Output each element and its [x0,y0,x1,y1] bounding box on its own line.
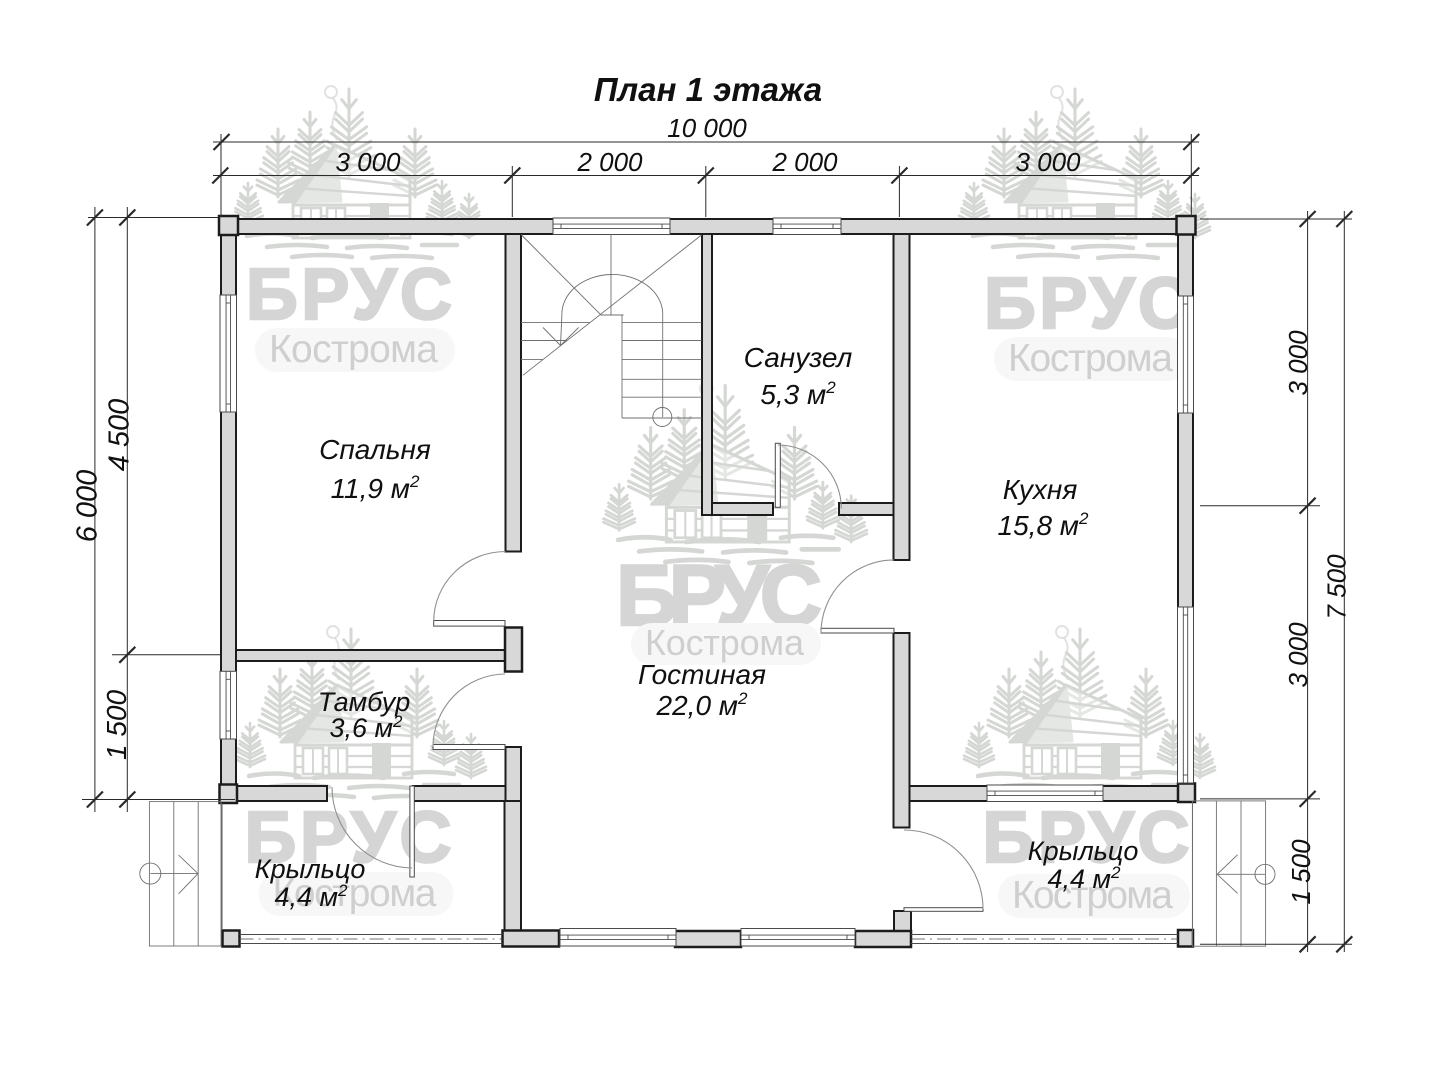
svg-text:Гостиная: Гостиная [638,659,766,690]
svg-text:5,3 м2: 5,3 м2 [760,378,836,410]
svg-text:3 000: 3 000 [335,147,401,177]
svg-text:Спальня: Спальня [319,434,431,465]
svg-text:22,0 м2: 22,0 м2 [656,689,748,721]
svg-text:Санузел: Санузел [744,342,853,373]
svg-text:6 000: 6 000 [72,470,104,543]
svg-text:3,6 м2: 3,6 м2 [329,712,403,743]
svg-text:10 000: 10 000 [667,113,747,143]
svg-text:15,8 м2: 15,8 м2 [998,509,1089,541]
svg-text:1 500: 1 500 [1286,839,1316,905]
svg-text:3 000: 3 000 [1283,622,1313,688]
svg-text:4 500: 4 500 [104,399,136,472]
svg-text:Кострома: Кострома [269,328,441,371]
svg-text:4,4 м2: 4,4 м2 [1047,863,1121,894]
svg-text:7 500: 7 500 [1322,554,1352,620]
svg-text:11,9 м2: 11,9 м2 [331,472,420,504]
svg-text:План 1 этажа: План 1 этажа [594,71,822,108]
svg-text:2 000: 2 000 [771,147,838,177]
svg-text:Кострома: Кострома [645,622,807,663]
svg-text:Кухня: Кухня [1003,474,1078,505]
svg-text:Крыльцо: Крыльцо [1028,836,1139,866]
svg-text:Крыльцо: Крыльцо [255,854,366,884]
svg-text:3 000: 3 000 [1283,330,1313,396]
svg-text:БРУС: БРУС [246,255,454,335]
svg-text:1 500: 1 500 [101,690,132,760]
svg-text:4,4 м2: 4,4 м2 [274,881,348,912]
svg-text:БРУС: БРУС [984,264,1192,344]
svg-text:3 000: 3 000 [1015,147,1081,177]
svg-text:Кострома: Кострома [1008,337,1176,380]
svg-text:2 000: 2 000 [576,147,643,177]
